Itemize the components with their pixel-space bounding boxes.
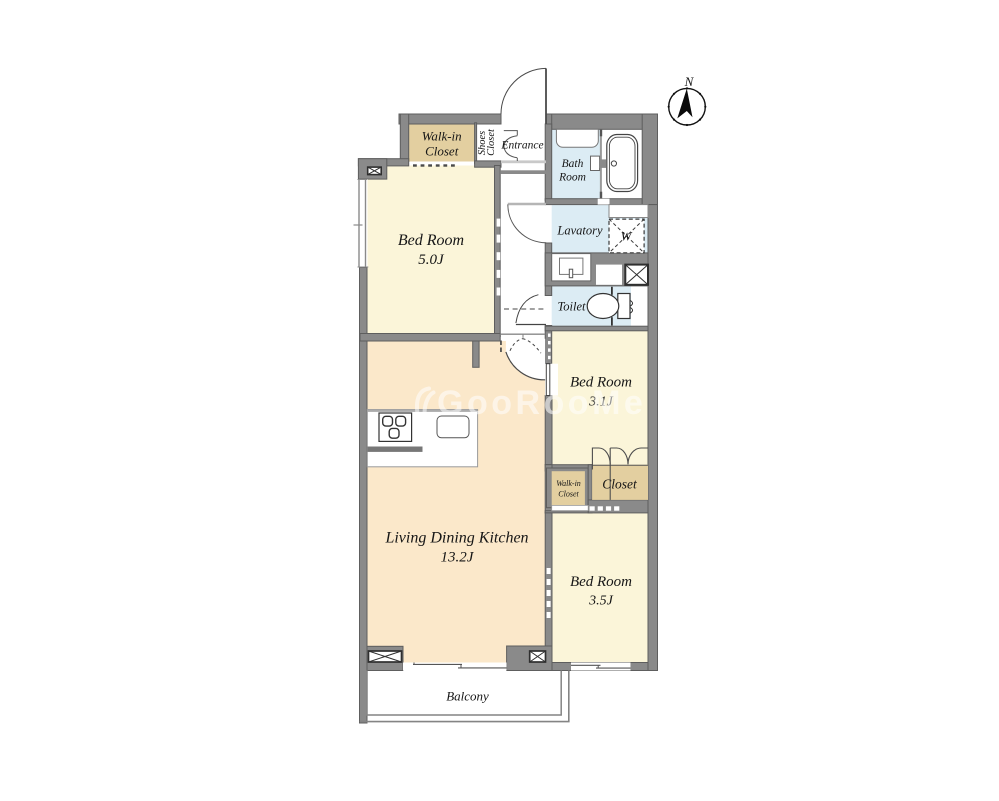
- svg-text:Closet: Closet: [602, 477, 638, 492]
- svg-text:Closet: Closet: [425, 144, 459, 159]
- svg-text:Living Dining Kitchen: Living Dining Kitchen: [384, 530, 528, 547]
- svg-text:Bed Room: Bed Room: [570, 574, 632, 590]
- svg-text:Closet: Closet: [486, 128, 497, 156]
- svg-text:Bed Room: Bed Room: [398, 232, 464, 249]
- svg-text:N: N: [684, 74, 695, 89]
- svg-text:Lavatory: Lavatory: [556, 224, 603, 238]
- svg-text:Toilet: Toilet: [557, 300, 586, 314]
- svg-text:Walk-in: Walk-in: [556, 479, 581, 488]
- svg-text:Balcony: Balcony: [446, 689, 489, 704]
- svg-text:Bath: Bath: [562, 158, 584, 170]
- svg-text:GooRooMe: GooRooMe: [437, 384, 646, 422]
- svg-text:Entrance: Entrance: [500, 140, 543, 152]
- svg-text:Room: Room: [558, 172, 586, 184]
- svg-text:Walk-in: Walk-in: [422, 129, 462, 144]
- svg-text:5.0J: 5.0J: [418, 252, 445, 268]
- svg-text:13.2J: 13.2J: [441, 550, 475, 566]
- svg-text:W: W: [621, 229, 633, 244]
- svg-text:3.5J: 3.5J: [588, 594, 614, 609]
- svg-text:Closet: Closet: [558, 490, 579, 499]
